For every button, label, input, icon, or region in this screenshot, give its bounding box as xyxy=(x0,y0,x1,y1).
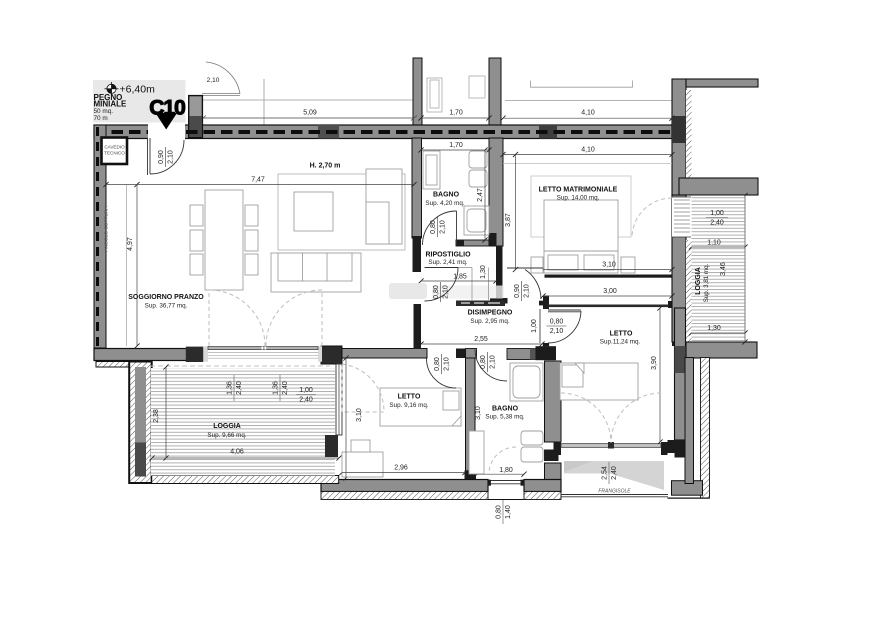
svg-text:Sup. 3,81 mq.: Sup. 3,81 mq. xyxy=(703,263,710,302)
svg-text:3,00: 3,00 xyxy=(603,288,617,295)
svg-text:7,47: 7,47 xyxy=(251,177,265,184)
svg-text:2,10: 2,10 xyxy=(490,355,497,369)
svg-text:Sup. 14,00 mq.: Sup. 14,00 mq. xyxy=(557,195,600,202)
svg-text:LOGGIA: LOGGIA xyxy=(695,267,702,295)
svg-text:Sup. 5,38 mq.: Sup. 5,38 mq. xyxy=(485,414,524,421)
svg-text:1,40: 1,40 xyxy=(505,505,512,519)
svg-text:0,80: 0,80 xyxy=(480,355,487,369)
svg-text:2,40: 2,40 xyxy=(710,220,724,227)
svg-text:LETTO MATRIMONIALE: LETTO MATRIMONIALE xyxy=(539,187,618,194)
svg-text:2,10: 2,10 xyxy=(207,77,220,84)
svg-text:1,00: 1,00 xyxy=(299,387,313,394)
svg-text:Sup. 9,66 mq.: Sup. 9,66 mq. xyxy=(207,432,246,439)
svg-text:2,40: 2,40 xyxy=(282,381,289,395)
svg-text:2,54: 2,54 xyxy=(602,466,609,480)
svg-text:0,90: 0,90 xyxy=(514,284,521,298)
svg-text:0,80: 0,80 xyxy=(430,220,437,234)
svg-text:3,10: 3,10 xyxy=(475,406,482,420)
svg-text:LETTO: LETTO xyxy=(398,394,421,401)
svg-text:3,10: 3,10 xyxy=(602,262,616,269)
svg-text:0,90: 0,90 xyxy=(158,150,165,164)
svg-text:1,00: 1,00 xyxy=(710,210,724,217)
svg-text:2,10: 2,10 xyxy=(550,328,564,335)
svg-text:CAVEDIO: CAVEDIO xyxy=(104,145,125,150)
svg-text:2,10: 2,10 xyxy=(440,220,447,234)
svg-text:SOGGIORNO PRANZO: SOGGIORNO PRANZO xyxy=(128,294,204,301)
svg-text:5,09: 5,09 xyxy=(303,110,317,117)
svg-text:Sup. 36,77 mq.: Sup. 36,77 mq. xyxy=(145,303,188,310)
svg-text:2,10: 2,10 xyxy=(168,150,175,164)
svg-text:0,80: 0,80 xyxy=(550,319,564,326)
svg-text:2,10: 2,10 xyxy=(444,357,451,371)
svg-text:2,55: 2,55 xyxy=(474,336,488,343)
svg-text:4,10: 4,10 xyxy=(581,110,595,117)
svg-text:1,36: 1,36 xyxy=(227,381,234,395)
svg-text:3,90: 3,90 xyxy=(651,356,658,370)
svg-text:1,70: 1,70 xyxy=(449,110,463,117)
svg-text:0,80: 0,80 xyxy=(433,285,440,299)
svg-text:2,10: 2,10 xyxy=(443,285,450,299)
svg-text:2,38: 2,38 xyxy=(153,409,160,423)
svg-text:2,40: 2,40 xyxy=(299,397,313,404)
svg-text:4,10: 4,10 xyxy=(581,147,595,154)
svg-text:1,10: 1,10 xyxy=(707,240,721,247)
svg-text:2,10: 2,10 xyxy=(524,284,531,298)
svg-text:2,40: 2,40 xyxy=(236,381,243,395)
svg-text:2,40: 2,40 xyxy=(611,466,618,480)
svg-text:1,80: 1,80 xyxy=(499,467,513,474)
svg-text:3,10: 3,10 xyxy=(356,408,363,422)
svg-text:1,36: 1,36 xyxy=(273,381,280,395)
svg-text:Sup. 4,20 mq.: Sup. 4,20 mq. xyxy=(425,200,464,207)
svg-text:Sup. 2,41 mq.: Sup. 2,41 mq. xyxy=(428,259,467,266)
svg-text:H. 2,70 m: H. 2,70 m xyxy=(310,163,341,170)
svg-text:70 m: 70 m xyxy=(94,115,108,122)
svg-text:3,46: 3,46 xyxy=(720,262,727,276)
svg-text:50 mq.: 50 mq. xyxy=(94,108,114,115)
svg-text:Sup. 2,95 mq.: Sup. 2,95 mq. xyxy=(470,318,509,325)
svg-text:3,87: 3,87 xyxy=(505,213,512,227)
svg-text:4,97: 4,97 xyxy=(127,237,134,251)
svg-text:2,96: 2,96 xyxy=(394,465,408,472)
svg-text:Sup. 9,16 mq.: Sup. 9,16 mq. xyxy=(389,402,428,409)
svg-text:RIPOSTIGLIO: RIPOSTIGLIO xyxy=(425,252,471,259)
svg-text:ANGOLO COTTURA: ANGOLO COTTURA xyxy=(104,206,110,252)
svg-text:BAGNO: BAGNO xyxy=(433,192,460,199)
svg-text:1,70: 1,70 xyxy=(449,142,463,149)
svg-text:TECNICO: TECNICO xyxy=(104,151,125,156)
svg-text:2,47: 2,47 xyxy=(477,188,484,202)
svg-text:0,80: 0,80 xyxy=(434,357,441,371)
svg-text:DISIMPEGNO: DISIMPEGNO xyxy=(468,310,513,317)
svg-text:Sup.11,24 mq.: Sup.11,24 mq. xyxy=(600,339,641,346)
svg-text:1,30: 1,30 xyxy=(480,265,487,279)
svg-text:1,85: 1,85 xyxy=(453,274,467,281)
svg-text:1,00: 1,00 xyxy=(531,319,538,333)
svg-text:BAGNO: BAGNO xyxy=(492,406,519,413)
svg-text:LOGGIA: LOGGIA xyxy=(213,423,241,430)
svg-text:1,30: 1,30 xyxy=(707,325,721,332)
svg-text:LETTO: LETTO xyxy=(610,331,633,338)
svg-text:4,06: 4,06 xyxy=(230,449,244,456)
svg-text:+6,40m: +6,40m xyxy=(120,84,156,96)
svg-text:0,80: 0,80 xyxy=(496,505,503,519)
svg-text:FRANGISOLE: FRANGISOLE xyxy=(598,489,631,495)
